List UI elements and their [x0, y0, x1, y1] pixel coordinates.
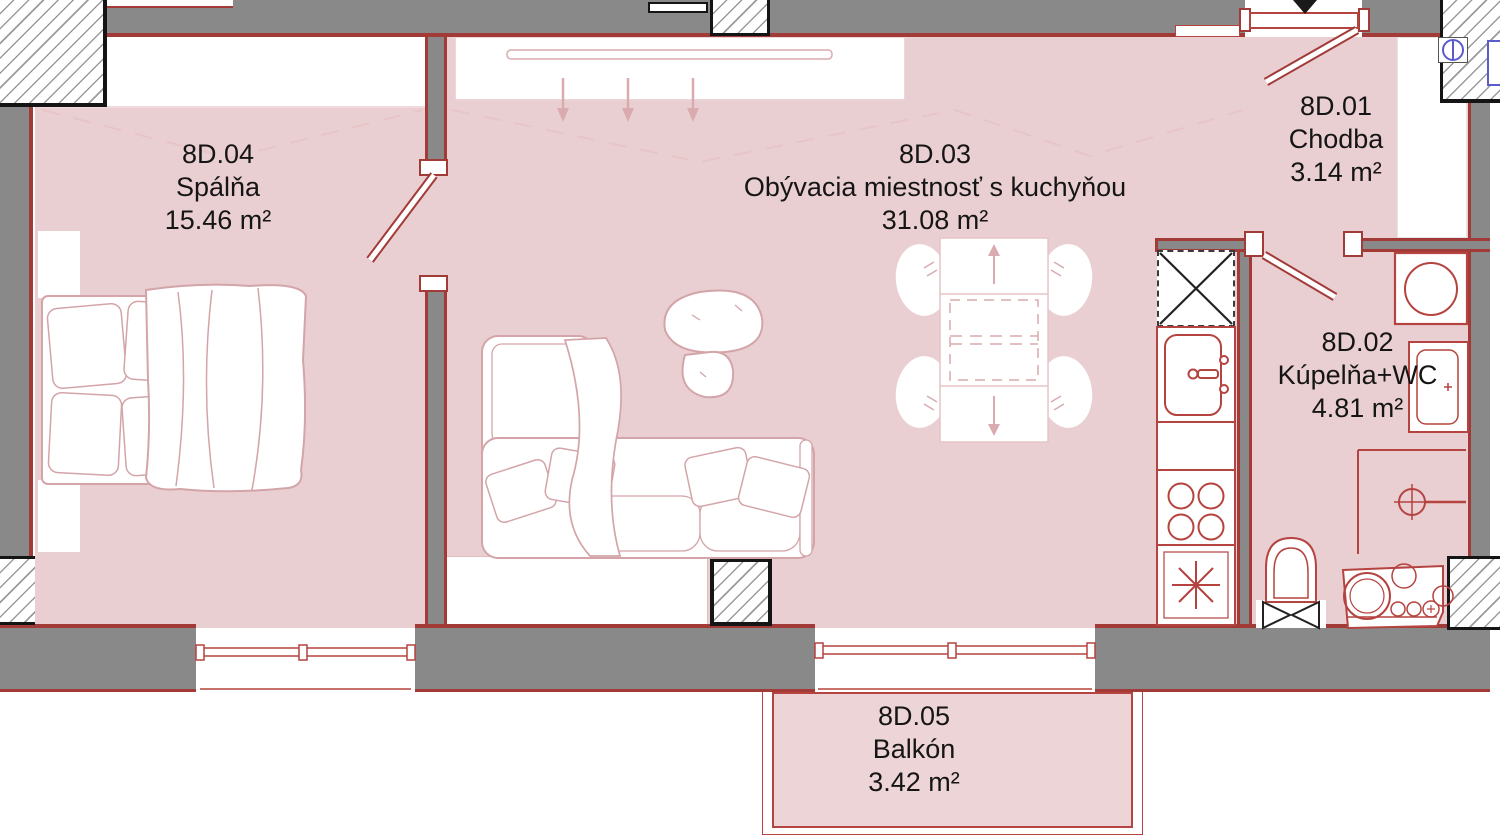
room-label-balcony: 8D.05 Balkón 3.42 m² [764, 700, 1064, 799]
hatch-corner-bottom-right [1447, 556, 1500, 630]
room-label-bedroom: 8D.04 Spálňa 15.46 m² [58, 138, 378, 237]
room-name: Balkón [764, 733, 1064, 766]
electrical-panel [1487, 40, 1500, 86]
wall-bottom-a [0, 624, 196, 692]
jamb-bedroom-bottom [419, 275, 448, 292]
room-code: 8D.02 [1255, 326, 1460, 359]
top-wall-window-slot2 [1175, 25, 1240, 37]
hatch-wall-column-top [710, 0, 770, 36]
floor-living [447, 37, 1250, 628]
room-label-hallway: 8D.01 Chodba 3.14 m² [1236, 90, 1436, 189]
wall-bottom-c [1095, 624, 1490, 692]
room-area: 31.08 m² [675, 204, 1195, 237]
shaft-box [1157, 250, 1235, 327]
room-name: Chodba [1236, 123, 1436, 156]
top-wall-window-slot [648, 2, 708, 13]
wardrobe-living [455, 37, 905, 100]
wall-divider-lower [425, 276, 447, 628]
room-code: 8D.01 [1236, 90, 1436, 123]
wall-hall-bath-right [1345, 238, 1490, 252]
wall-divider-upper [425, 37, 447, 168]
room-area: 3.14 m² [1236, 156, 1436, 189]
jamb-bedroom-top [419, 159, 448, 176]
balcony-door [815, 628, 1095, 692]
nightstand-top [38, 231, 80, 298]
jamb-bath-left [1244, 231, 1264, 257]
intercom-box [1438, 37, 1468, 63]
column-living [710, 558, 772, 626]
entrance-door-strip [1249, 12, 1359, 29]
floor-bedroom [35, 37, 447, 628]
wall-left [0, 37, 33, 628]
hatch-corner-bottom-left [0, 556, 35, 625]
wall-right [1468, 37, 1490, 628]
floor-bathroom [1252, 252, 1468, 628]
bedroom-window [196, 628, 415, 692]
room-name: Kúpelňa+WC [1255, 359, 1460, 392]
jamb-bath-right [1343, 231, 1363, 257]
hatch-corner-top-left [0, 0, 107, 107]
room-name: Obývacia miestnosť s kuchyňou [675, 171, 1195, 204]
wall-top-right [1362, 0, 1447, 37]
wall-kitchen-bath [1237, 252, 1252, 628]
tv-sideboard [440, 556, 708, 627]
room-label-bathroom: 8D.02 Kúpelňa+WC 4.81 m² [1255, 326, 1460, 425]
floor-plan: 8D.04 Spálňa 15.46 m² 8D.03 Obývacia mie… [0, 0, 1500, 835]
room-name: Spálňa [58, 171, 378, 204]
wall-bottom-b [415, 624, 815, 692]
room-area: 15.46 m² [58, 204, 378, 237]
room-code: 8D.03 [675, 138, 1195, 171]
room-area: 4.81 m² [1255, 392, 1460, 425]
room-label-living: 8D.03 Obývacia miestnosť s kuchyňou 31.0… [675, 138, 1195, 237]
room-area: 3.42 m² [764, 766, 1064, 799]
jamb-entry-right [1358, 8, 1370, 32]
room-code: 8D.04 [58, 138, 378, 171]
room-code: 8D.05 [764, 700, 1064, 733]
nightstand-bottom [38, 480, 80, 552]
